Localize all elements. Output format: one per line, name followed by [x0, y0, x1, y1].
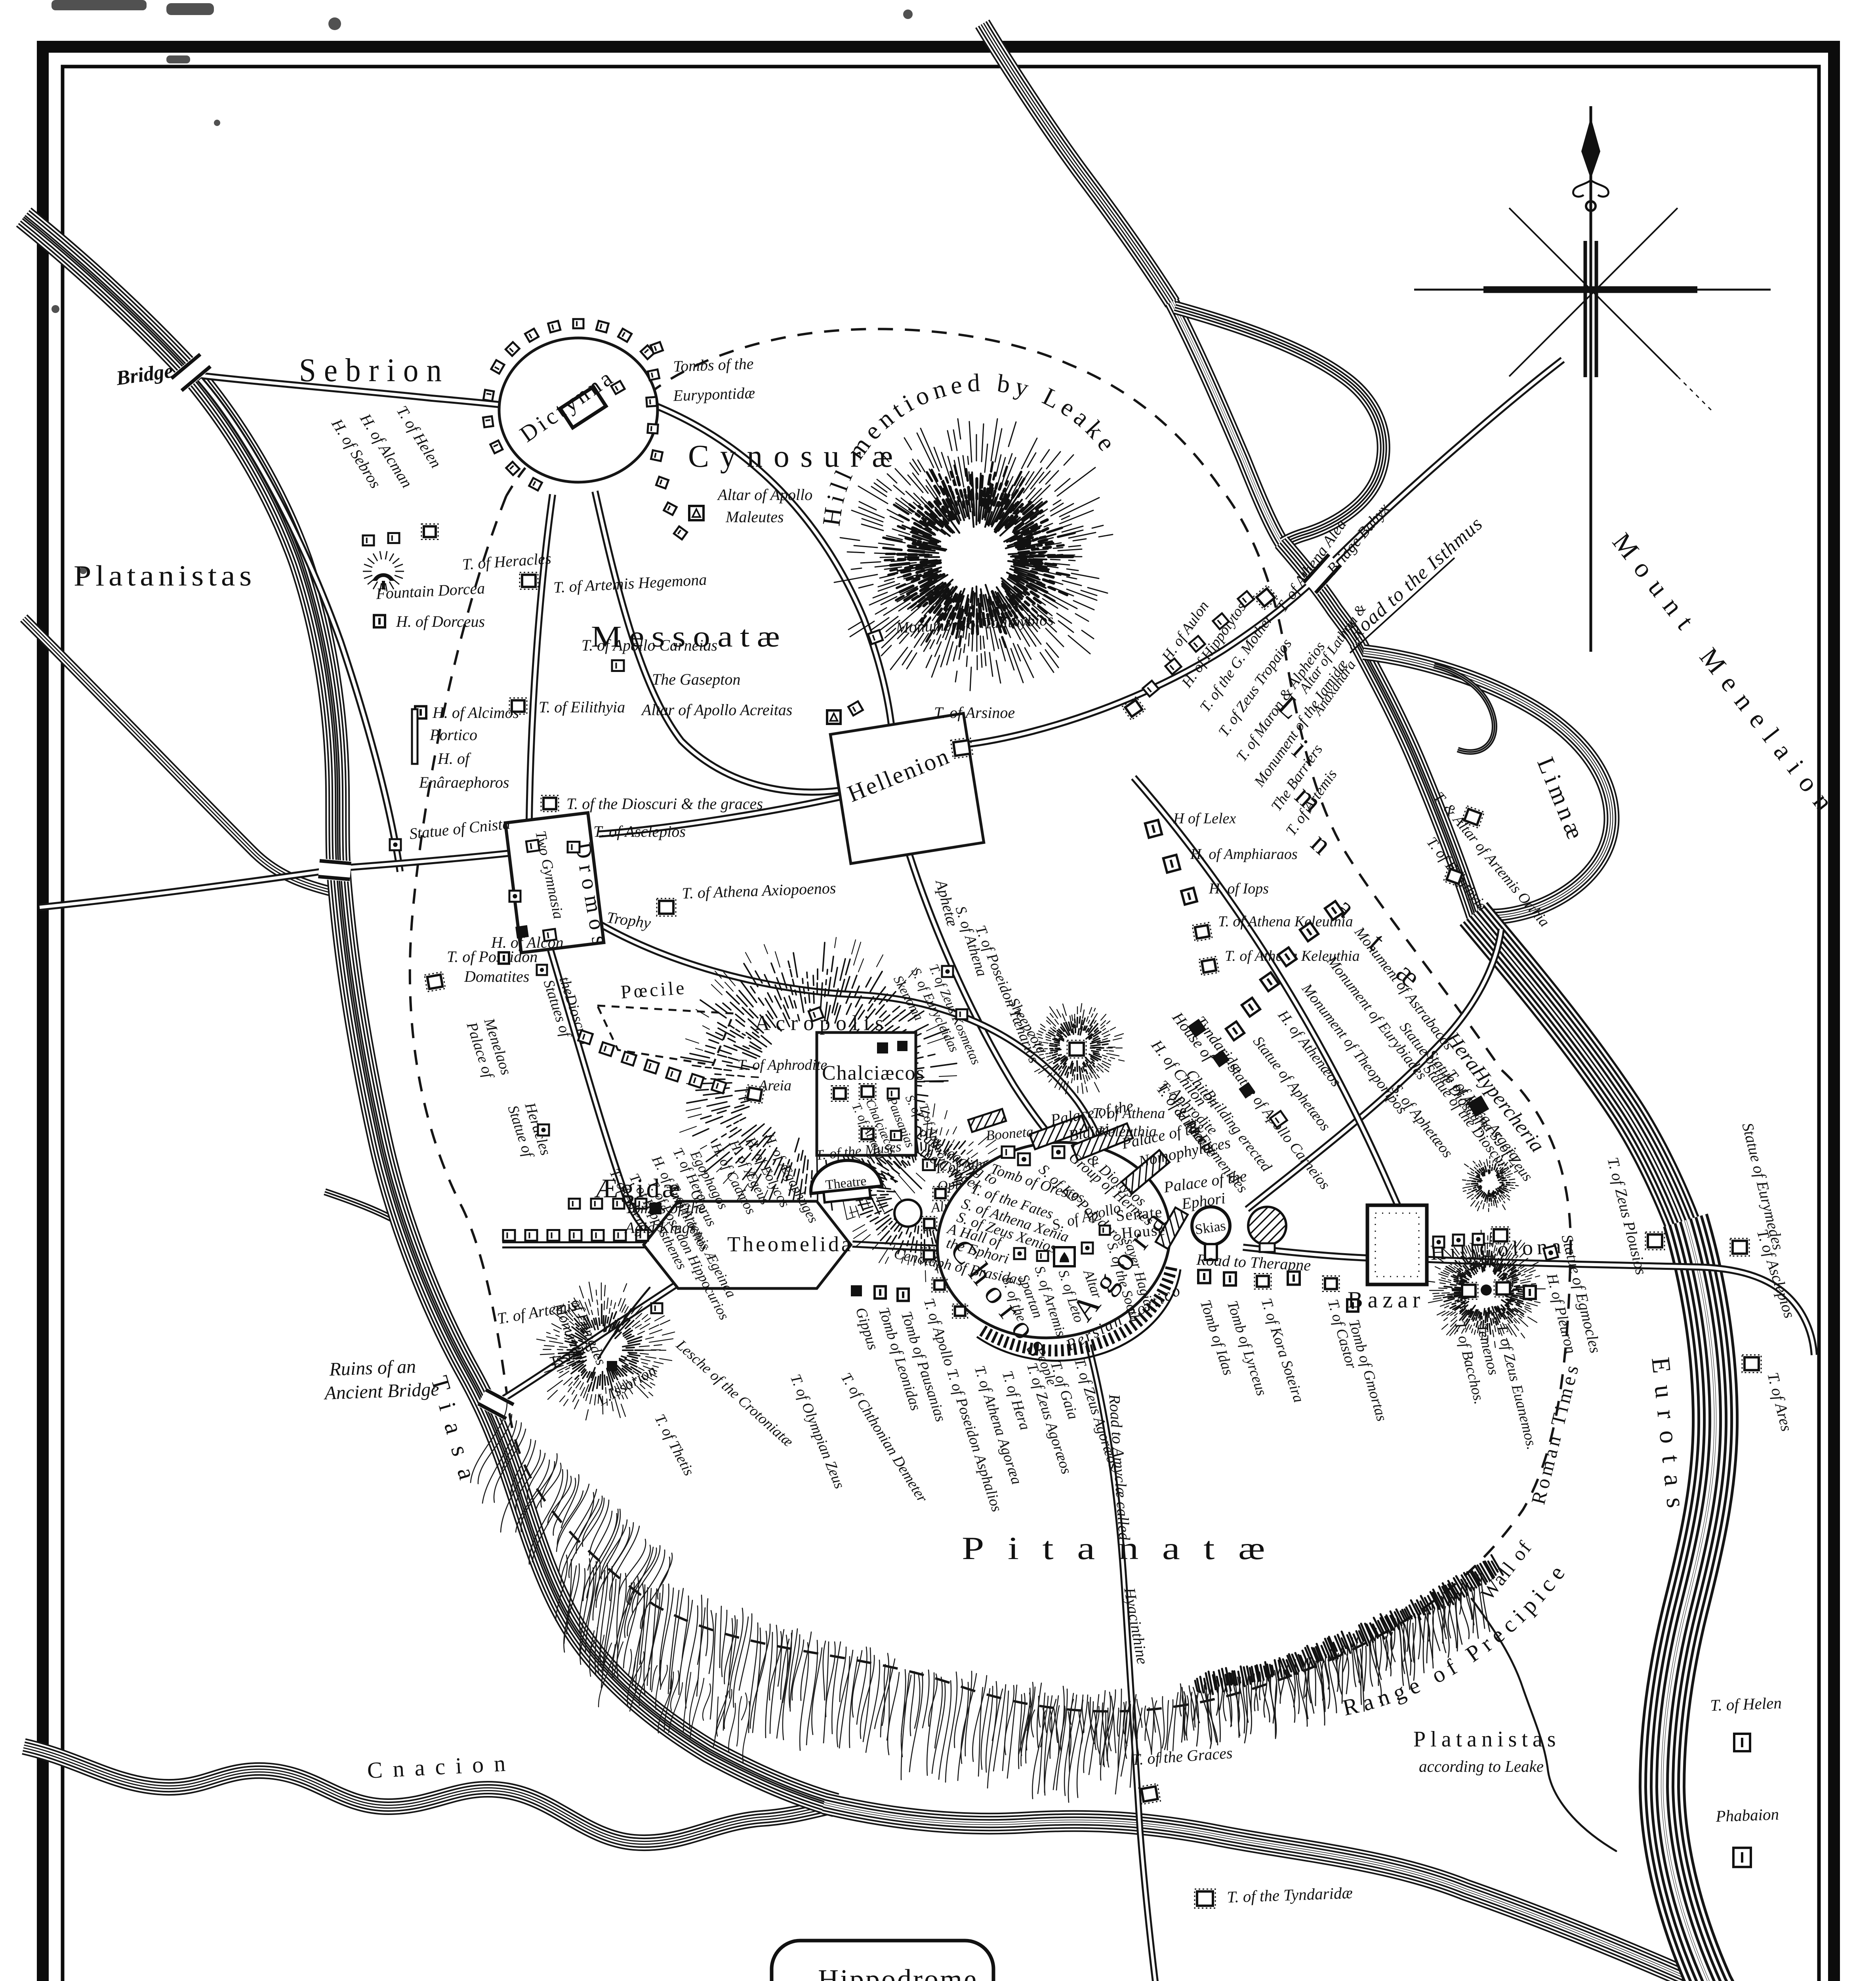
svg-text:H. of Iops: H. of Iops	[1209, 880, 1269, 897]
svg-text:Tombs of the: Tombs of the	[625, 1199, 705, 1217]
svg-text:H. of Alcimos: H. of Alcimos	[432, 704, 519, 721]
svg-text:Bazar: Bazar	[1348, 1287, 1425, 1313]
svg-text:T. of Apollo Carneias: T. of Apollo Carneias	[581, 636, 717, 654]
svg-text:Portico: Portico	[429, 726, 477, 744]
svg-text:Maleutes: Maleutes	[725, 508, 784, 526]
svg-text:Altar of Apollo: Altar of Apollo	[717, 486, 812, 504]
svg-text:H. of Alcon: H. of Alcon	[491, 933, 564, 951]
svg-text:Keleuthia: Keleuthia	[1098, 1123, 1157, 1140]
svg-text:T. of Arsinoe: T. of Arsinoe	[934, 704, 1015, 721]
svg-text:T. of Eilithyia: T. of Eilithyia	[539, 698, 625, 716]
svg-text:T. of Aphrodite: T. of Aphrodite	[738, 1057, 827, 1073]
svg-text:Hippodrome.: Hippodrome.	[818, 1964, 987, 1981]
svg-text:Theomelida: Theomelida	[727, 1232, 853, 1256]
svg-text:H. of Dorceus: H. of Dorceus	[396, 613, 485, 630]
svg-text:Agid Kings: Agid Kings	[624, 1219, 696, 1237]
svg-text:Eurypontidæ: Eurypontidæ	[673, 384, 755, 405]
svg-text:Enâraephoros: Enâraephoros	[419, 773, 509, 791]
svg-text:Altar of Apollo Acreitas: Altar of Apollo Acreitas	[641, 701, 792, 719]
svg-text:T. of Asclepios: T. of Asclepios	[593, 823, 686, 840]
svg-text:H of Lelex: H of Lelex	[1173, 810, 1236, 827]
svg-text:Tombs of the: Tombs of the	[673, 355, 754, 375]
svg-text:H. of Amphiaraos: H. of Amphiaraos	[1190, 846, 1298, 863]
svg-text:Platanistas: Platanistas	[1413, 1727, 1561, 1752]
svg-text:Platanistas: Platanistas	[74, 560, 256, 592]
svg-text:H. of: H. of	[437, 750, 471, 767]
svg-text:Phabaion: Phabaion	[1715, 1805, 1779, 1825]
svg-text:T. of Athena: T. of Athena	[1092, 1105, 1165, 1122]
svg-text:Chalciæcos: Chalciæcos	[822, 1062, 925, 1084]
svg-text:Acropolis: Acropolis	[755, 1011, 889, 1035]
svg-text:The Gasepton: The Gasepton	[652, 670, 740, 688]
svg-text:Ruins of an: Ruins of an	[329, 1356, 416, 1380]
svg-text:Sebrion: Sebrion	[299, 352, 450, 389]
svg-text:T. of Helen: T. of Helen	[1710, 1694, 1782, 1714]
svg-text:according to Leake: according to Leake	[1419, 1757, 1544, 1775]
svg-text:Pitanatæ: Pitanatæ	[962, 1530, 1289, 1566]
svg-text:Ancient Bridge: Ancient Bridge	[323, 1379, 440, 1404]
svg-text:Domatites: Domatites	[464, 968, 529, 985]
svg-text:T. of the Dioscuri & the grace: T. of the Dioscuri & the graces	[566, 795, 763, 813]
